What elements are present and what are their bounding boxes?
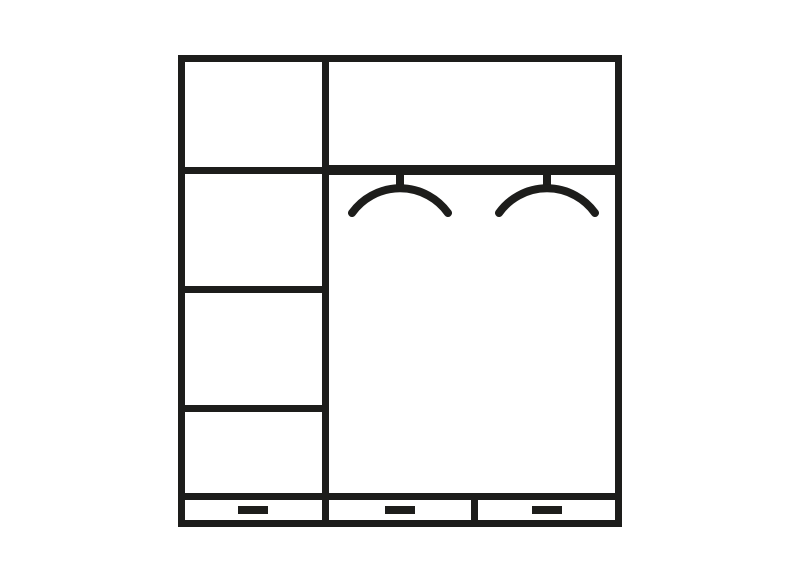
hanger-shoulder-arc bbox=[499, 188, 595, 213]
hanging-rail bbox=[325, 165, 622, 175]
clothes-hanger-icon bbox=[348, 175, 452, 219]
hanger-shoulder-arc bbox=[352, 188, 448, 213]
clothes-hanger-icon bbox=[495, 175, 599, 219]
left-shelf-2 bbox=[181, 286, 329, 293]
drawer-handle bbox=[385, 506, 415, 514]
drawer-handle bbox=[532, 506, 562, 514]
left-shelf-3 bbox=[181, 405, 329, 412]
drawer-row-top-line bbox=[178, 493, 622, 500]
drawer-divider bbox=[471, 493, 478, 527]
left-shelf-1 bbox=[181, 167, 329, 174]
wardrobe-schematic bbox=[0, 0, 792, 566]
drawer-handle bbox=[238, 506, 268, 514]
